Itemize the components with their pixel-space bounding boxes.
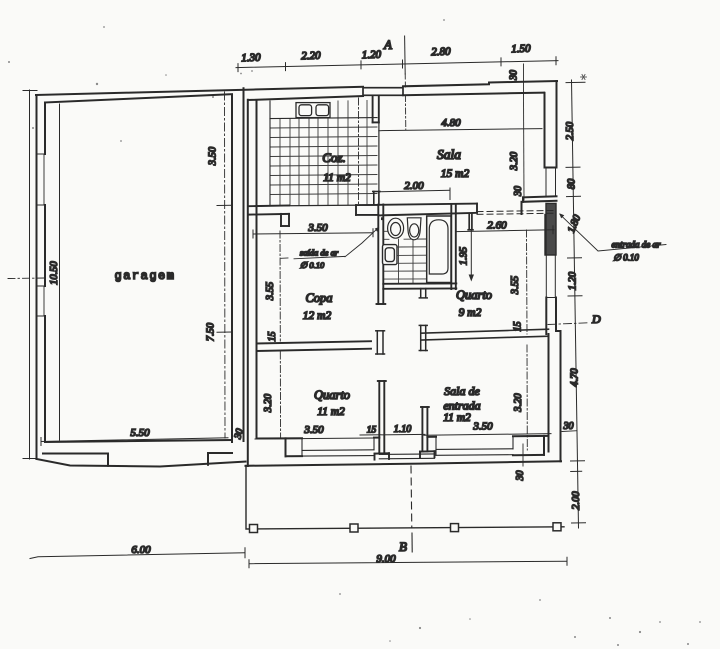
svg-text:15 m2: 15 m2 xyxy=(441,168,470,180)
svg-text:Sala: Sala xyxy=(437,147,461,162)
svg-text:∅ 0.10: ∅ 0.10 xyxy=(300,260,325,270)
svg-text:Copa: Copa xyxy=(305,291,332,305)
svg-text:7.50: 7.50 xyxy=(206,322,217,341)
svg-text:3.20: 3.20 xyxy=(513,393,524,413)
svg-text:1.50: 1.50 xyxy=(511,43,531,55)
svg-text:Quarto: Quarto xyxy=(456,288,492,302)
svg-text:15: 15 xyxy=(367,426,377,436)
svg-text:3.20: 3.20 xyxy=(509,151,520,171)
svg-text:10.50: 10.50 xyxy=(49,260,60,284)
svg-text:2.00: 2.00 xyxy=(571,491,582,510)
svg-text:30: 30 xyxy=(509,70,520,81)
svg-text:11 m2: 11 m2 xyxy=(323,172,351,184)
svg-text:5.50: 5.50 xyxy=(130,427,150,439)
svg-text:Coz.: Coz. xyxy=(322,150,345,165)
svg-text:A: A xyxy=(383,37,392,52)
svg-text:9 m2: 9 m2 xyxy=(459,307,482,319)
svg-text:3.50: 3.50 xyxy=(472,421,493,433)
svg-text:3.50: 3.50 xyxy=(303,424,324,436)
svg-text:30: 30 xyxy=(515,471,526,482)
svg-text:30: 30 xyxy=(513,186,524,197)
svg-text:1.10: 1.10 xyxy=(394,424,412,435)
svg-text:1.30: 1.30 xyxy=(241,52,261,64)
svg-text:1.20: 1.20 xyxy=(362,49,382,61)
svg-text:2.00: 2.00 xyxy=(404,180,424,192)
svg-text:B: B xyxy=(399,539,407,554)
svg-text:Sala de: Sala de xyxy=(444,384,480,398)
svg-text:garagem: garagem xyxy=(115,269,176,283)
svg-text:11 m2: 11 m2 xyxy=(317,406,345,418)
svg-text:4.70: 4.70 xyxy=(570,368,581,387)
svg-text:2.50: 2.50 xyxy=(565,121,576,140)
svg-text:80: 80 xyxy=(567,178,578,189)
svg-text:saída de ar: saída de ar xyxy=(300,248,339,258)
svg-text:3.50: 3.50 xyxy=(307,222,328,234)
svg-text:3.20: 3.20 xyxy=(263,393,274,413)
svg-text:2.80: 2.80 xyxy=(431,46,451,58)
svg-text:entrada: entrada xyxy=(443,399,480,413)
svg-text:1.20: 1.20 xyxy=(568,271,579,290)
svg-text:15: 15 xyxy=(513,322,524,332)
svg-text:4.80: 4.80 xyxy=(441,117,461,129)
svg-text:1.95: 1.95 xyxy=(459,247,470,265)
svg-text:11 m2: 11 m2 xyxy=(443,412,471,424)
svg-text:12 m2: 12 m2 xyxy=(303,310,332,322)
svg-text:1.80: 1.80 xyxy=(566,213,583,235)
svg-text:3.55: 3.55 xyxy=(265,282,276,301)
svg-text:Quarto: Quarto xyxy=(314,388,350,402)
svg-text:3.50: 3.50 xyxy=(208,146,219,166)
svg-text:9.00: 9.00 xyxy=(376,553,396,565)
svg-text:30: 30 xyxy=(563,421,574,432)
svg-text:entrada de ar: entrada de ar xyxy=(612,240,661,250)
svg-text:15: 15 xyxy=(267,332,278,342)
svg-text:2.20: 2.20 xyxy=(301,50,321,62)
svg-text:D: D xyxy=(591,312,601,326)
svg-text:3.55: 3.55 xyxy=(510,276,521,295)
svg-text:2.60: 2.60 xyxy=(487,220,507,232)
svg-text:∅ 0.10: ∅ 0.10 xyxy=(613,253,639,263)
